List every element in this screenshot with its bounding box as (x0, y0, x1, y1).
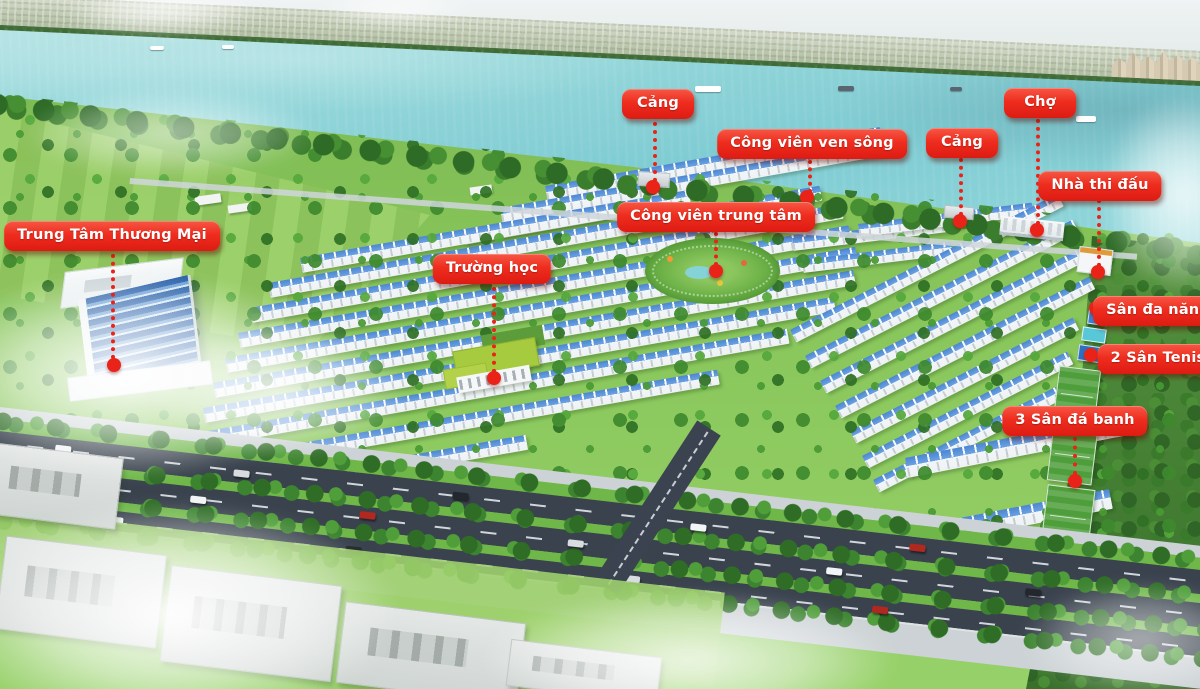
leader-dot (953, 214, 967, 228)
leader-line (1036, 119, 1040, 225)
leader-line (959, 158, 963, 216)
label-cong-vien-trung-tam: Công viên trung tâm (617, 202, 815, 232)
leader-line (111, 254, 115, 359)
leader-dot (1068, 474, 1082, 488)
leader-dot (709, 264, 723, 278)
leader-dot (487, 371, 501, 385)
label-san-tenis: 2 Sân Tenis (1098, 344, 1200, 374)
leader-dot (1084, 348, 1098, 362)
label-san-da-banh: 3 Sân đá banh (1002, 406, 1147, 436)
label-cang-2: Cảng (926, 128, 998, 158)
leader-line (714, 232, 718, 266)
label-nha-thi-dau: Nhà thi đấu (1038, 171, 1161, 201)
masterplan-scene: Cảng Công viên ven sông Chợ Cảng Nhà thi… (0, 0, 1200, 689)
leader-line (492, 287, 496, 373)
label-truong-hoc: Trường học (433, 254, 551, 284)
leader-line (808, 160, 812, 193)
leader-line (653, 122, 657, 182)
label-cong-vien-ven-song: Công viên ven sông (717, 129, 907, 159)
label-trung-tam-thuong-mai: Trung Tâm Thương Mại (4, 221, 220, 251)
leader-dot (107, 358, 121, 372)
label-cho: Chợ (1004, 88, 1076, 118)
leader-dot (646, 180, 660, 194)
label-cang-1: Cảng (622, 89, 694, 119)
label-san-da-nang: Sân đa năng (1093, 296, 1200, 326)
leader-dot (1091, 265, 1105, 279)
callout-layer: Cảng Công viên ven sông Chợ Cảng Nhà thi… (0, 0, 1200, 689)
leader-dot (1030, 223, 1044, 237)
leader-line (1073, 437, 1077, 475)
leader-line (1097, 199, 1101, 267)
